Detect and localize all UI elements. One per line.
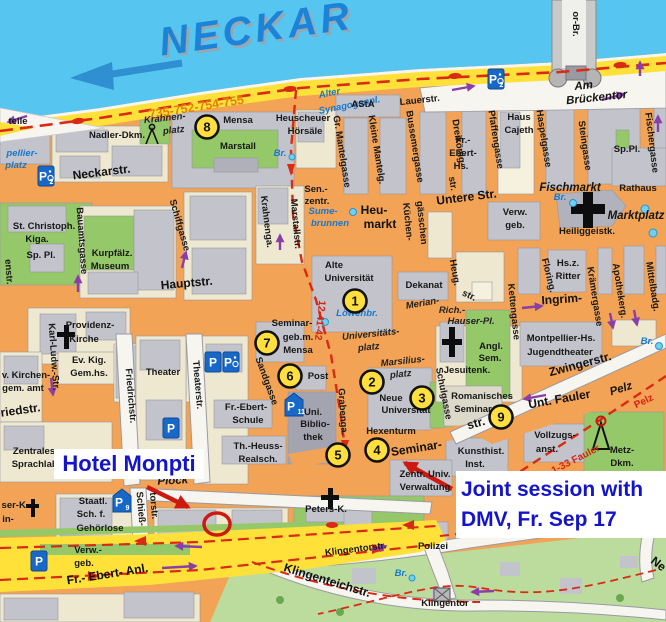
map-label-montpellier-hs: Montpellier-Hs.	[527, 333, 596, 344]
map-marker-5: 5	[327, 444, 350, 467]
map-label-sp-pl: Sp.Pl.	[614, 144, 640, 155]
map-label-st-christoph: St. Christoph.	[13, 221, 75, 232]
map-label-thek: thek	[303, 432, 323, 443]
map-marker-6: 6	[279, 365, 302, 388]
map-label-str: str.	[446, 176, 459, 192]
map-label-kiga: Kiga.	[25, 234, 48, 245]
map-label-ser-k: ser-K.	[2, 500, 29, 511]
map-label-marstall: Marstall	[220, 141, 256, 152]
map-label-vollzugs: Vollzugs-	[534, 430, 576, 441]
map-label-realsch: Realsch.	[238, 454, 277, 465]
map-label-peters-k: Peters-K.	[305, 504, 347, 515]
map-marker-9: 9	[490, 406, 513, 429]
map-marker-7: 7	[256, 332, 279, 355]
map-label-angl: Angl.	[479, 341, 503, 352]
map-label-enstr: enstr.	[2, 259, 15, 285]
map-label-verw: Verw.	[503, 207, 527, 218]
map-label-or-br: or-Br.	[570, 11, 581, 36]
map-label-asta: AStA	[351, 99, 374, 110]
svg-text:P: P	[224, 356, 232, 370]
map-marker-1: 1	[344, 290, 367, 313]
map-label-geb-m: geb.m.	[283, 332, 314, 343]
map-label-polizei: Polizei	[418, 541, 448, 552]
parking-icon-P2: P2	[488, 69, 504, 89]
svg-text:5: 5	[334, 448, 341, 463]
map-label-br: Br.	[274, 148, 287, 159]
svg-text:P: P	[167, 422, 175, 436]
svg-text:P: P	[39, 170, 47, 184]
map-label-gem-amt: gem. amt	[2, 383, 45, 394]
map-label-seminar: Seminar	[454, 404, 492, 415]
map-label-geb: geb.	[505, 220, 525, 231]
map-label-in: in-	[2, 514, 14, 525]
svg-text:P: P	[35, 555, 43, 569]
svg-text:P: P	[209, 356, 217, 370]
svg-text:P: P	[115, 496, 123, 510]
map-label-klingentor: Klingentor	[421, 598, 469, 609]
map-label-pellier: pellier-	[5, 148, 37, 159]
map-label-post: Post	[308, 371, 329, 382]
map-label-geb: geb.	[74, 558, 94, 569]
map-label-kirche: Kirche	[69, 334, 99, 345]
map-label-providenz: Providenz-	[66, 320, 115, 331]
map-label-heiliggeistk: Heiliggeistk.	[559, 226, 615, 237]
map-label-seminar: Seminar-	[272, 318, 313, 329]
map-label-verwaltung: Verwaltung	[400, 482, 451, 493]
map-label-zentrales: Zentrales	[13, 446, 55, 457]
map-label-haus: Haus	[507, 112, 530, 123]
map-label-platz: platz	[4, 160, 27, 171]
svg-text:7: 7	[263, 336, 270, 351]
svg-text:9: 9	[126, 505, 130, 512]
map-label-gem-hs: Gem.hs.	[70, 368, 108, 379]
map-label-verw: Verw.-	[74, 545, 102, 556]
map-label-inst: Inst.	[465, 459, 485, 470]
map-label-ev-kig: Ev. Kig.	[72, 355, 106, 366]
parking-icon-P: P	[31, 551, 47, 571]
parking-icon-P: P	[223, 352, 239, 372]
svg-text:2: 2	[368, 375, 375, 390]
map-label-br: Br.	[641, 336, 654, 347]
map-label-ritter: Ritter	[556, 271, 581, 282]
map-label-schule: Schule	[232, 415, 263, 426]
map-label-mensa: Mensa	[283, 345, 313, 356]
map-label-sprachlab: Sprachlab.	[12, 459, 61, 470]
map-label-fischmarkt: Fischmarkt	[539, 182, 602, 194]
map-marker-2: 2	[361, 371, 384, 394]
map-label-metz: Metz-	[610, 445, 634, 456]
map-label-th-heuss: Th.-Heuss-	[233, 441, 282, 452]
map-label-torstr: torstr.	[147, 492, 160, 520]
map-label-universit-t: Universität	[324, 273, 374, 284]
map-label-mensa: Mensa	[223, 115, 253, 126]
map-marker-3: 3	[411, 387, 434, 410]
parking-icon-P: P	[205, 352, 221, 372]
map-label-zentr-univ: Zentr. Univ.	[399, 469, 450, 480]
map-label-markt: markt	[364, 217, 397, 231]
map-label-geh-rlose: Gehörlose	[77, 523, 124, 534]
svg-text:8: 8	[203, 120, 210, 135]
svg-text:3: 3	[418, 391, 425, 406]
map-label-sch-f: Sch. f.	[77, 509, 106, 520]
map-label-br: Br.	[395, 568, 408, 579]
map-label-staatl: Staatl.	[79, 496, 108, 507]
map-label-kurpf-lz: Kurpfälz.	[92, 248, 133, 259]
map-label-rich: Rich.-	[439, 305, 465, 316]
svg-text:4: 4	[373, 443, 381, 458]
svg-text:P: P	[287, 400, 295, 414]
joint-session-annotation: Joint session with DMV, Fr. Sep 17	[456, 471, 666, 538]
map-label-sume: Sume-	[308, 206, 337, 217]
map-label-theater: Theater	[146, 367, 181, 378]
map-label-alte: Alte	[325, 260, 343, 271]
map-label-biblio: Biblio-	[300, 419, 330, 430]
map-label-museum: Museum	[91, 261, 130, 272]
map-label-romanisches: Romanisches	[451, 391, 513, 402]
map-label-telle: telle	[8, 116, 27, 127]
parking-icon-P2: P2	[38, 166, 54, 186]
map-label-v-kirchen: v. Kirchen-	[2, 370, 50, 381]
svg-text:P: P	[489, 73, 497, 87]
map-label-br: Br.	[554, 192, 567, 203]
map-label-uni: Uni.	[304, 407, 322, 418]
map-label-ingrim: Ingrim-	[541, 291, 583, 308]
map-label-neue: Neue	[379, 393, 402, 404]
map-label-brunnen: brunnen	[311, 218, 349, 229]
map-label-ebert: Ebert-	[449, 148, 476, 159]
map-label-cajeth: Cajeth	[504, 125, 533, 136]
svg-text:9: 9	[497, 410, 504, 425]
map-label-nadler-dkm: Nadler-Dkm.	[89, 130, 145, 141]
joint-session-line2: DMV, Fr. Sep 17	[461, 505, 666, 535]
svg-text:11: 11	[298, 409, 306, 416]
svg-text:6: 6	[286, 369, 293, 384]
map-label-sp-pl: Sp. Pl.	[26, 250, 55, 261]
map-label-hs: Hs.	[454, 161, 469, 172]
map-label-dekanat: Dekanat	[406, 280, 444, 291]
hotel-monpti-annotation: Hotel Monpti	[54, 449, 204, 479]
map-label-h-rs-le: Hörsäle	[288, 126, 323, 137]
map-label-hs-z: Hs.z.	[557, 258, 579, 269]
map-label-marktplatz: Marktplatz	[608, 210, 665, 222]
city-map: NECKARNECKAR735-752-754-755tellepellier-…	[0, 0, 666, 622]
map-marker-8: 8	[196, 116, 219, 139]
parking-icon-P: P	[163, 418, 179, 438]
map-label-fr-ebert: Fr.-Ebert-	[225, 402, 267, 413]
map-label-sen: Sen.-	[304, 184, 327, 195]
map-label-jesuitenk: Jesuitenk.	[444, 365, 490, 376]
map-label-rathaus: Rathaus	[619, 183, 656, 194]
map-label-sem: Sem.	[479, 353, 502, 364]
hotel-monpti-label: Hotel Monpti	[62, 451, 195, 477]
map-label-kunsthist: Kunsthist.	[458, 446, 504, 457]
map-label-am: Am	[573, 79, 594, 93]
svg-text:1: 1	[351, 294, 358, 309]
joint-session-line1: Joint session with	[461, 475, 666, 505]
map-label-hexenturm: Hexenturm	[366, 426, 416, 437]
map-label-hauser-pl: Hauser-Pl.	[448, 316, 495, 327]
map-label-fr: Fr.-	[456, 135, 471, 146]
map-label-anst: anst.	[536, 444, 558, 455]
map-marker-4: 4	[366, 439, 389, 462]
map-label-heu: Heu-	[361, 203, 388, 217]
map-label-dkm: Dkm.	[610, 458, 633, 469]
